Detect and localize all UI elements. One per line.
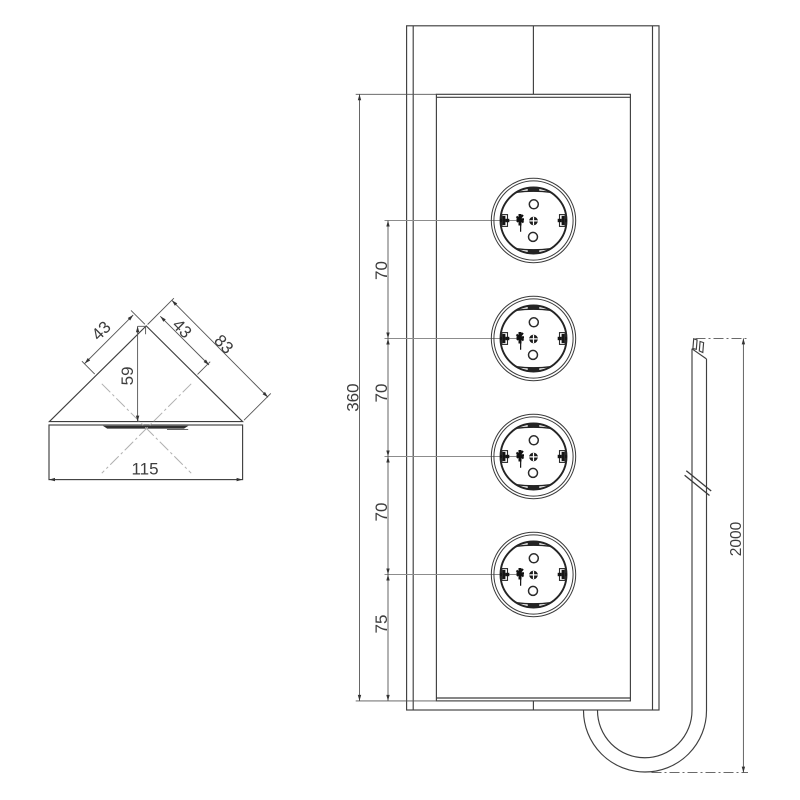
- svg-text:70: 70: [372, 261, 391, 280]
- svg-text:43: 43: [169, 315, 196, 342]
- svg-text:70: 70: [372, 503, 391, 522]
- svg-text:2000: 2000: [728, 521, 745, 556]
- svg-text:115: 115: [131, 460, 158, 479]
- svg-text:70: 70: [372, 384, 391, 403]
- svg-text:360: 360: [343, 383, 362, 411]
- svg-text:83: 83: [210, 331, 237, 358]
- svg-text:59: 59: [118, 366, 137, 385]
- svg-text:75: 75: [372, 615, 391, 634]
- svg-text:43: 43: [88, 317, 115, 344]
